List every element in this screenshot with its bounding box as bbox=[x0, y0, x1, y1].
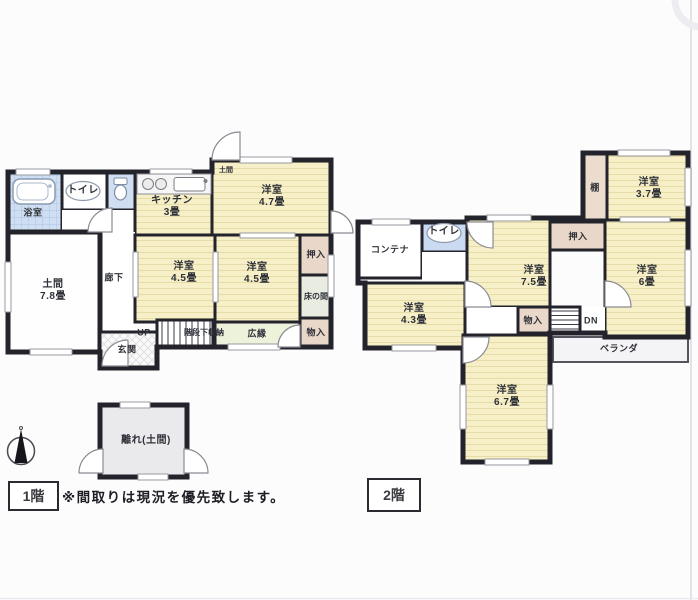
disclaimer-note: ※間取りは現況を優先致します。 bbox=[62, 486, 285, 506]
floor2-plan bbox=[358, 150, 691, 465]
room-47 bbox=[212, 160, 331, 235]
shelf-room bbox=[583, 153, 607, 220]
toilet2-oval-icon bbox=[427, 224, 461, 243]
north-arrow-icon bbox=[8, 427, 35, 465]
room-container bbox=[358, 222, 422, 278]
room-45b bbox=[215, 235, 300, 322]
bathtub-icon bbox=[13, 179, 55, 204]
room-43 bbox=[365, 283, 465, 348]
closet-oshiire2 bbox=[550, 222, 605, 250]
floor2-tag: 2階 bbox=[367, 478, 421, 512]
stairs-up-icon bbox=[157, 320, 213, 347]
hall2-lower bbox=[465, 307, 518, 335]
room-45a bbox=[135, 235, 215, 322]
stairs-down-icon bbox=[550, 307, 580, 333]
room-doma bbox=[8, 232, 100, 352]
faucet-icon bbox=[204, 179, 208, 183]
closet-monoire1 bbox=[300, 318, 331, 347]
closet-oshiire1 bbox=[300, 235, 331, 275]
floorplan-graphics bbox=[0, 0, 698, 600]
annex-plan bbox=[79, 402, 208, 480]
annex-room bbox=[100, 405, 187, 477]
corner-watermark-arc bbox=[675, 0, 698, 27]
floor1-plan bbox=[5, 132, 353, 368]
kitchen-counter-icon bbox=[137, 174, 211, 194]
stove-burner-icon bbox=[156, 179, 167, 190]
room-6 bbox=[605, 220, 688, 337]
room-37 bbox=[607, 153, 688, 220]
veranda bbox=[553, 337, 688, 362]
sink-icon bbox=[174, 178, 205, 192]
stove-burner-icon bbox=[143, 179, 154, 190]
closet-monoire2 bbox=[518, 307, 550, 333]
hall2-upper bbox=[422, 252, 467, 283]
tokonoma bbox=[300, 275, 331, 318]
floor1-tag: 1階 bbox=[8, 481, 59, 511]
stair-landing2 bbox=[580, 307, 605, 333]
toilet1-oval-icon bbox=[66, 182, 100, 201]
corridor bbox=[100, 232, 135, 332]
wc1-toilet-icon bbox=[114, 178, 127, 200]
floorplan-canvas: 浴室 トイレ キッチン 3畳 洋室 4.7畳 土間 廊下 土間 7.8畳 洋室 … bbox=[0, 0, 698, 600]
